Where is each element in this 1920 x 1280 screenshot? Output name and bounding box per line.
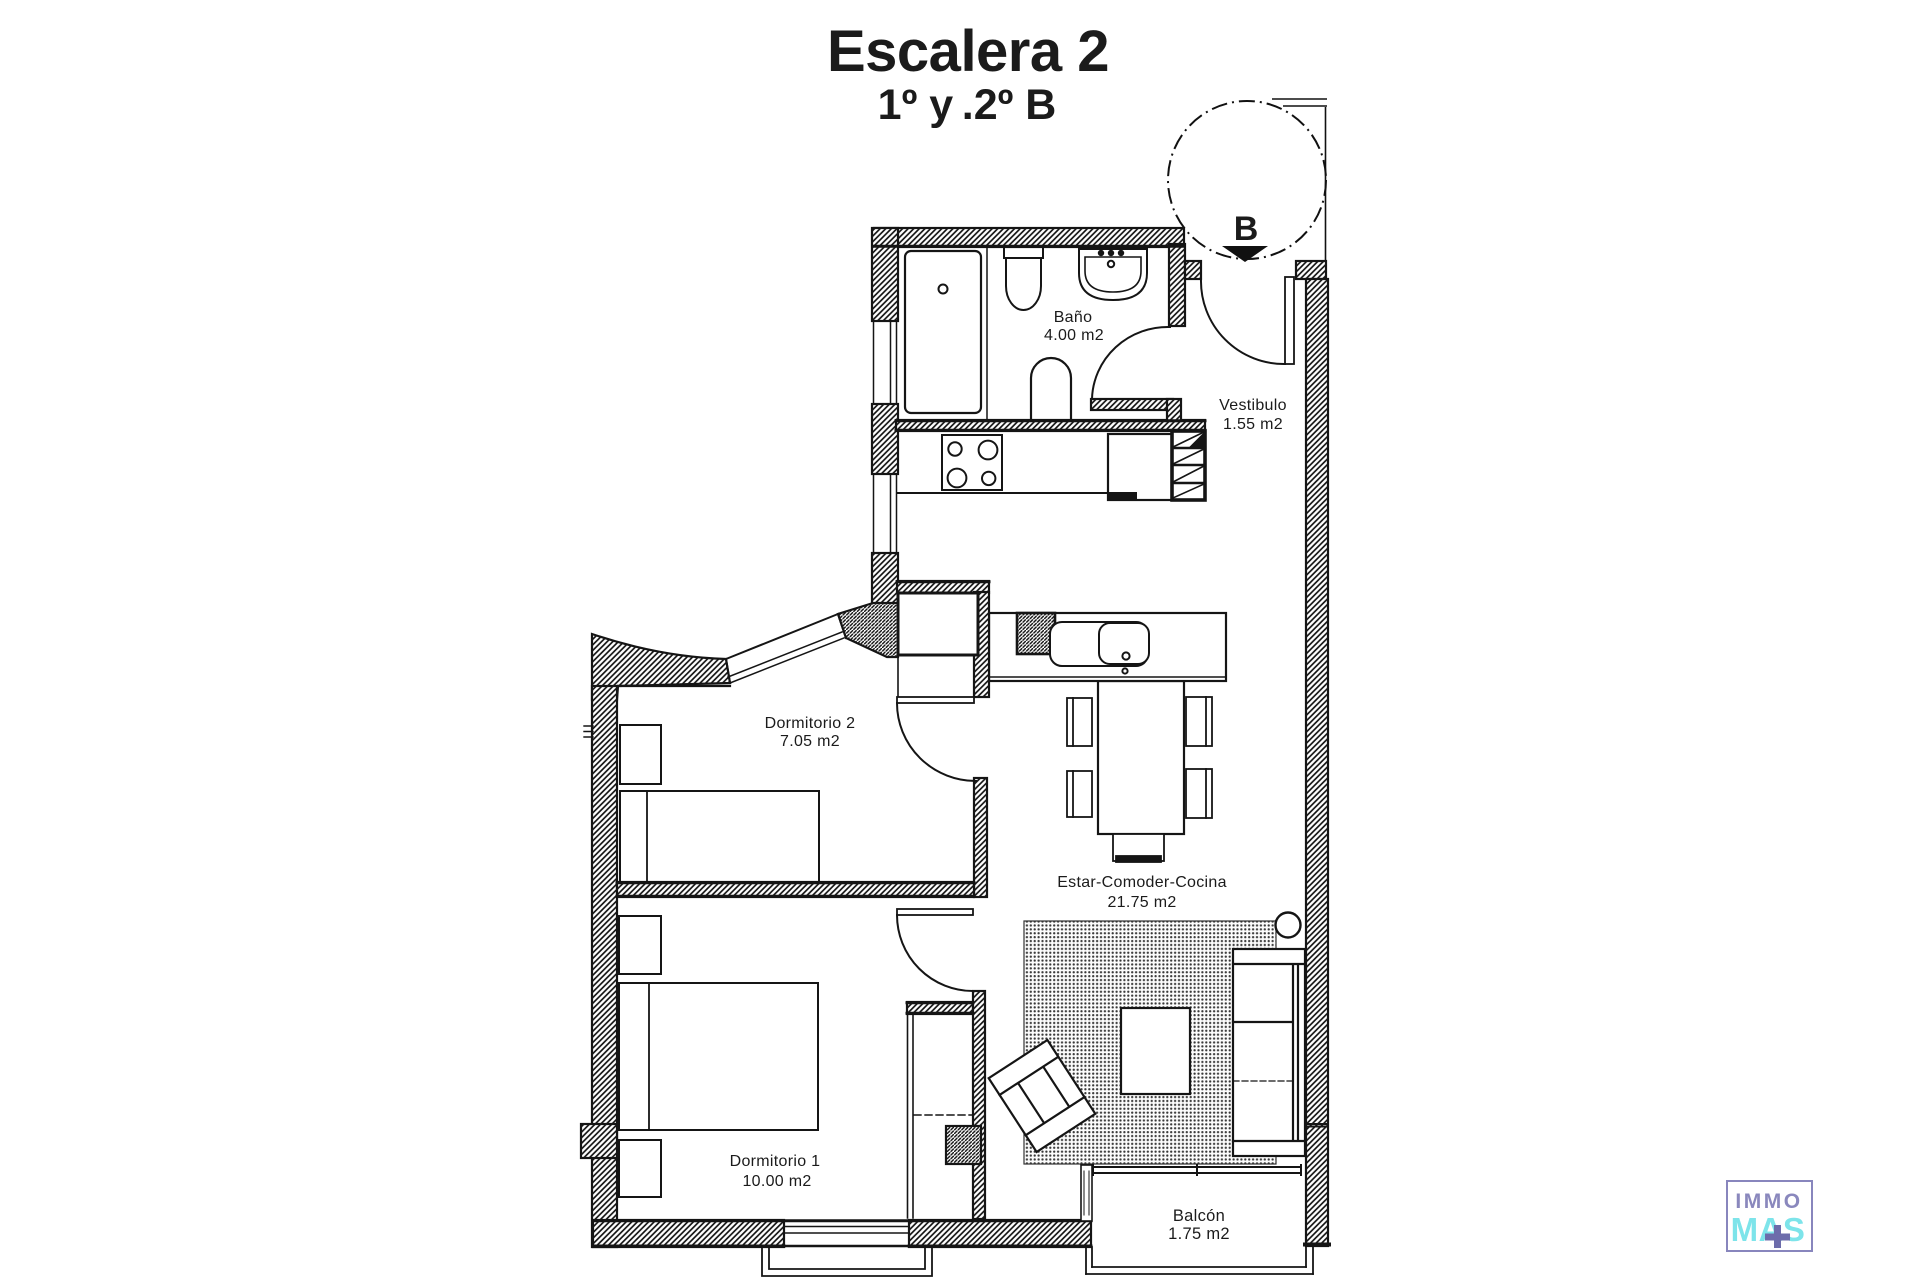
svg-text:B: B — [1234, 210, 1259, 248]
svg-text:Dormitorio 1: Dormitorio 1 — [730, 1153, 821, 1170]
svg-text:Escalera 2: Escalera 2 — [827, 19, 1109, 84]
svg-text:Dormitorio 2: Dormitorio 2 — [765, 715, 856, 732]
svg-text:Vestibulo: Vestibulo — [1219, 397, 1287, 414]
svg-text:Baño: Baño — [1054, 309, 1093, 326]
svg-text:7.05 m2: 7.05 m2 — [780, 733, 840, 750]
svg-text:1.75 m2: 1.75 m2 — [1168, 1225, 1230, 1243]
svg-text:1.55 m2: 1.55 m2 — [1223, 416, 1283, 433]
svg-text:IMMO: IMMO — [1735, 1190, 1802, 1213]
svg-text:10.00 m2: 10.00 m2 — [742, 1173, 811, 1190]
svg-text:MAS: MAS — [1731, 1211, 1806, 1248]
svg-text:21.75 m2: 21.75 m2 — [1107, 894, 1176, 911]
svg-text:4.00 m2: 4.00 m2 — [1044, 327, 1104, 344]
svg-text:Balcón: Balcón — [1173, 1207, 1225, 1225]
svg-text:1º y .2º B: 1º y .2º B — [878, 81, 1057, 129]
svg-text:Estar-Comoder-Cocina: Estar-Comoder-Cocina — [1057, 874, 1227, 891]
